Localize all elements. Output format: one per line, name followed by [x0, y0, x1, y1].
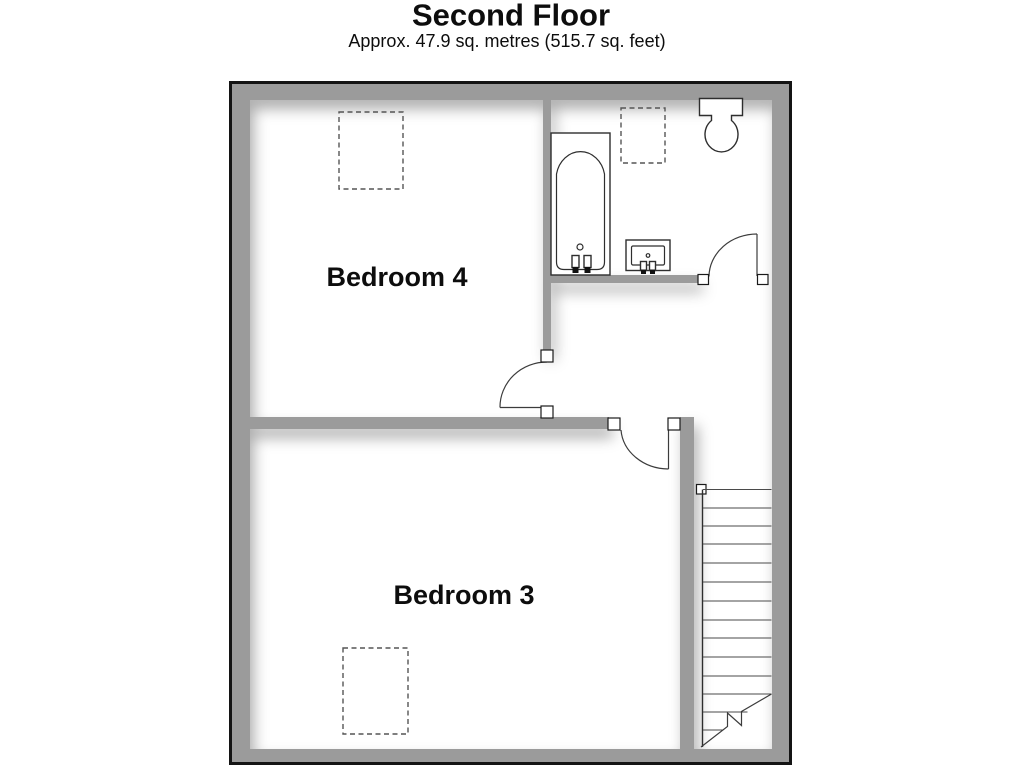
bedroom3-door [621, 430, 669, 469]
jamb [541, 406, 553, 418]
sink-tap-tip [641, 270, 646, 275]
wall-bathroom-south [543, 275, 699, 283]
second-floor-plan: Second Floor Approx. 47.9 sq. metres (51… [0, 0, 1024, 768]
bathtub-tap-tip [573, 267, 579, 273]
wall-bathroom-west [543, 100, 551, 351]
jamb [541, 350, 553, 362]
toilet-icon [700, 99, 743, 152]
wall-bedroom-divider [250, 417, 609, 429]
bathtub-tap [584, 256, 591, 268]
sink-tap [650, 262, 656, 271]
sink-tap [641, 262, 647, 271]
wall-outer-left [229, 81, 250, 765]
jamb [668, 418, 680, 430]
bedroom4-door-swing [500, 362, 547, 408]
page-subtitle: Approx. 47.9 sq. metres (515.7 sq. feet) [348, 31, 665, 51]
door-jambs [541, 275, 768, 495]
bathroom-door [709, 234, 757, 277]
bedroom4-label: Bedroom 4 [326, 262, 467, 292]
bathtub-tap [572, 256, 579, 268]
sink-outer [626, 240, 670, 271]
bedroom4-skylight-dashed [339, 112, 403, 189]
jamb [698, 275, 709, 285]
floorplan-page: Second Floor Approx. 47.9 sq. metres (51… [0, 0, 1024, 768]
jamb [758, 275, 769, 285]
bathroom-door-swing [709, 234, 757, 277]
sink-tap-tip [650, 270, 655, 275]
bathtub-outer [551, 133, 610, 275]
stair-break-line [701, 694, 772, 747]
staircase [701, 490, 772, 748]
wall-stairwell-west [680, 417, 694, 749]
bedroom3-door-swing [621, 430, 669, 469]
bedroom3-skylight-dashed [343, 648, 408, 734]
walls [229, 81, 792, 765]
bathroom-skylight-dashed [621, 108, 665, 163]
bathtub-icon [551, 133, 610, 275]
bedroom3-label: Bedroom 3 [393, 580, 534, 610]
wall-layer [229, 81, 792, 765]
page-title: Second Floor [412, 0, 610, 33]
bathtub-tap-tip [585, 267, 591, 273]
sink-icon [626, 240, 670, 274]
jamb [608, 418, 620, 430]
bedroom4-door [500, 362, 547, 408]
